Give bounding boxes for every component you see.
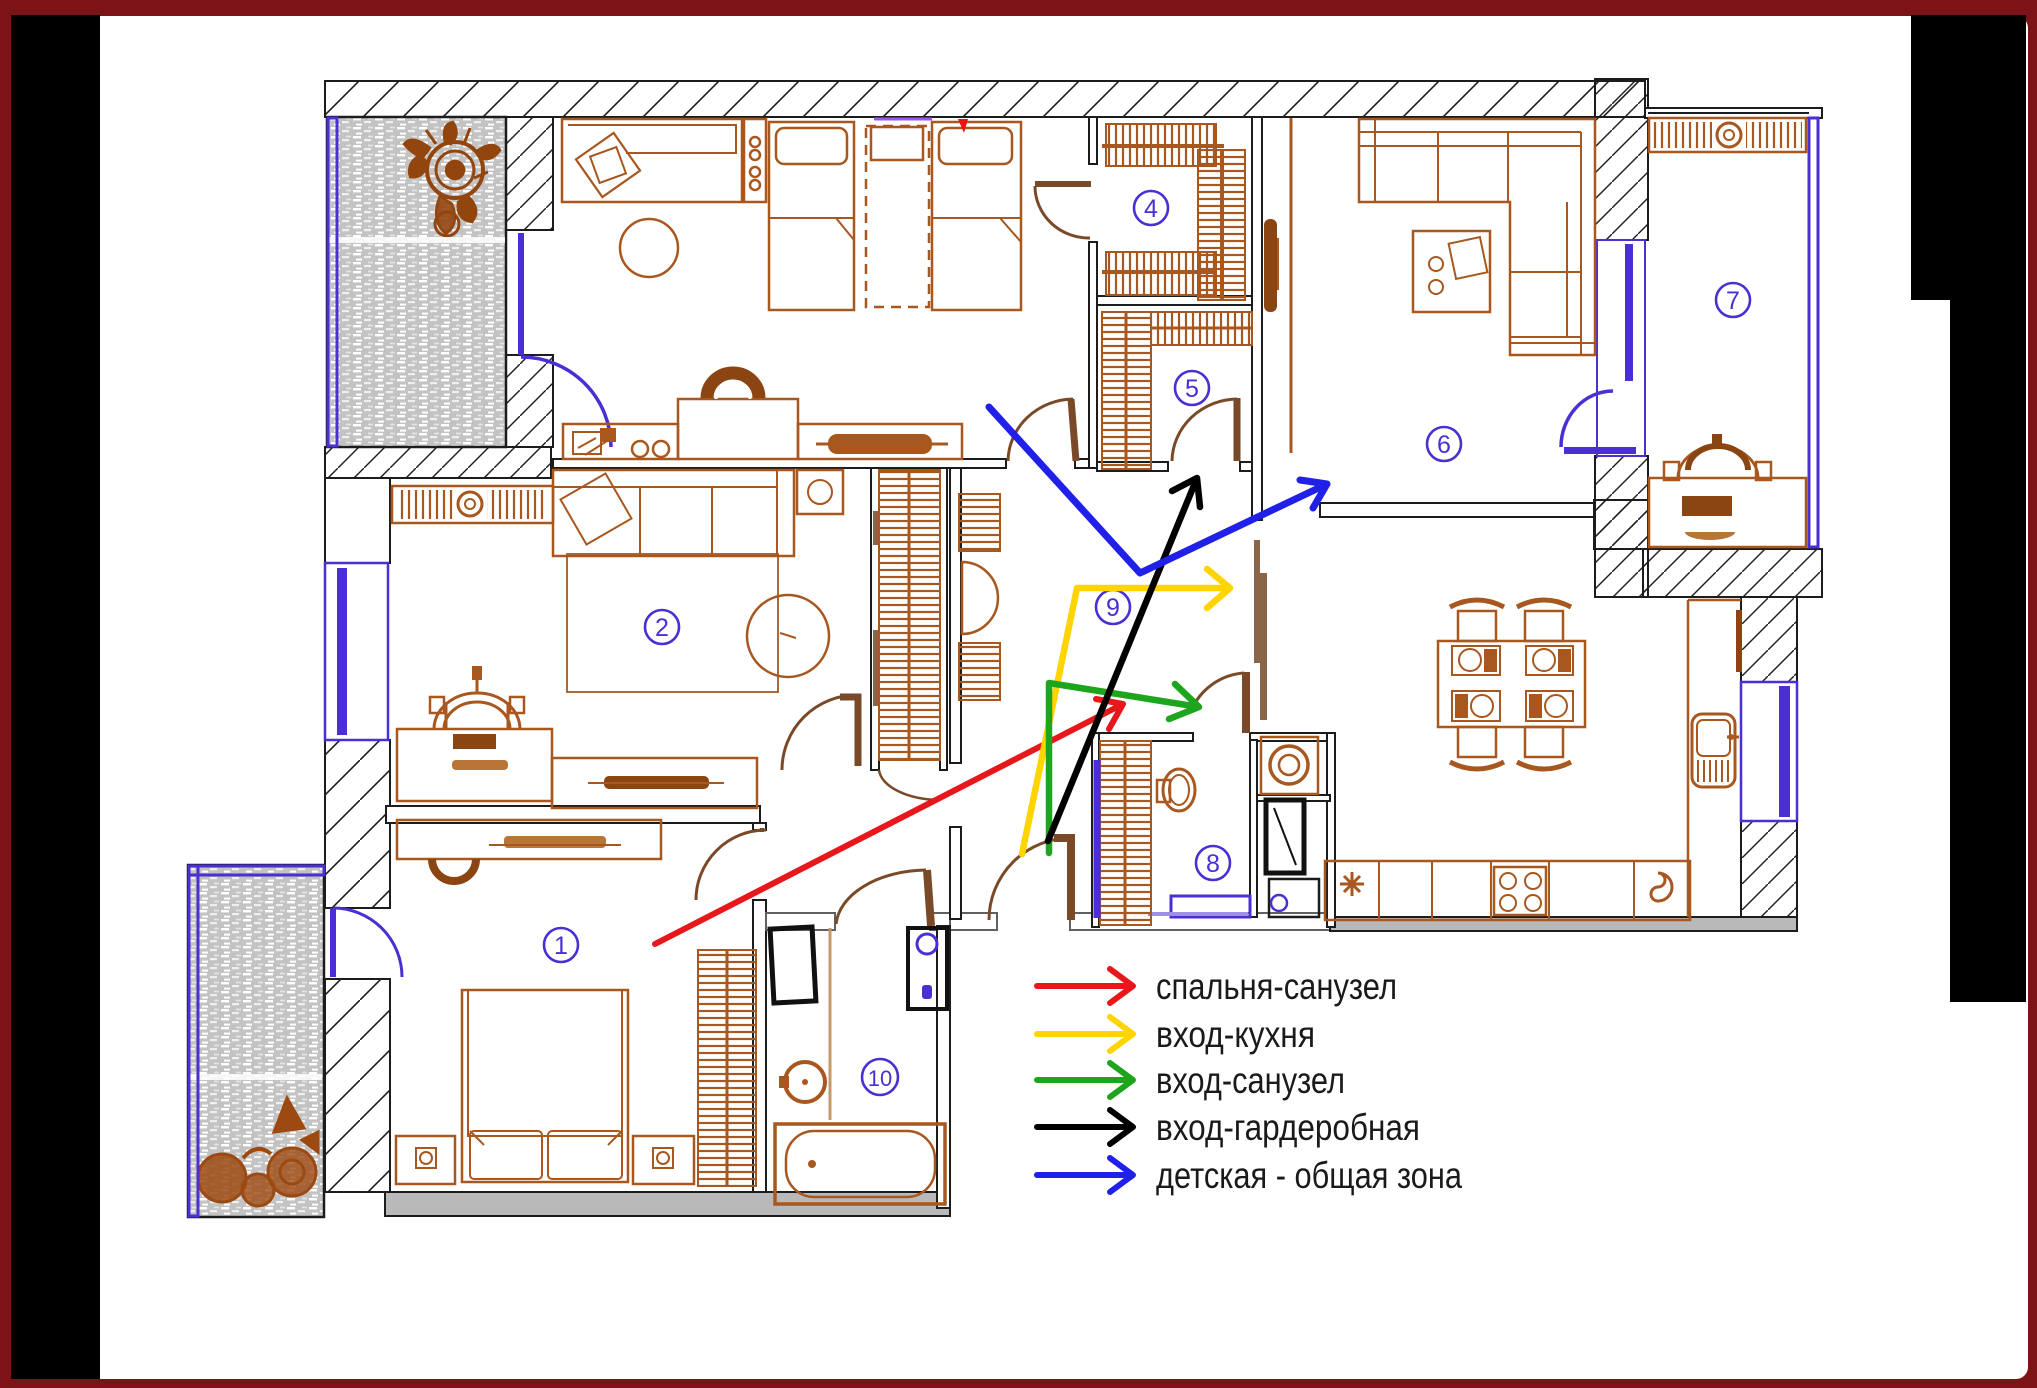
svg-text:8: 8 — [1206, 850, 1220, 878]
svg-text:2: 2 — [655, 614, 669, 642]
svg-text:детская - общая зона: детская - общая зона — [1156, 1155, 1462, 1196]
svg-text:10: 10 — [868, 1066, 892, 1091]
svg-text:4: 4 — [1144, 195, 1158, 223]
svg-text:вход-кухня: вход-кухня — [1156, 1014, 1315, 1055]
svg-text:6: 6 — [1437, 431, 1451, 459]
svg-text:9: 9 — [1106, 594, 1120, 622]
svg-text:5: 5 — [1185, 375, 1199, 403]
svg-text:вход-санузел: вход-санузел — [1156, 1060, 1345, 1101]
svg-text:7: 7 — [1726, 287, 1740, 315]
svg-text:вход-гардеробная: вход-гардеробная — [1156, 1107, 1420, 1148]
svg-text:1: 1 — [554, 932, 568, 960]
svg-text:спальня-санузел: спальня-санузел — [1156, 966, 1397, 1007]
